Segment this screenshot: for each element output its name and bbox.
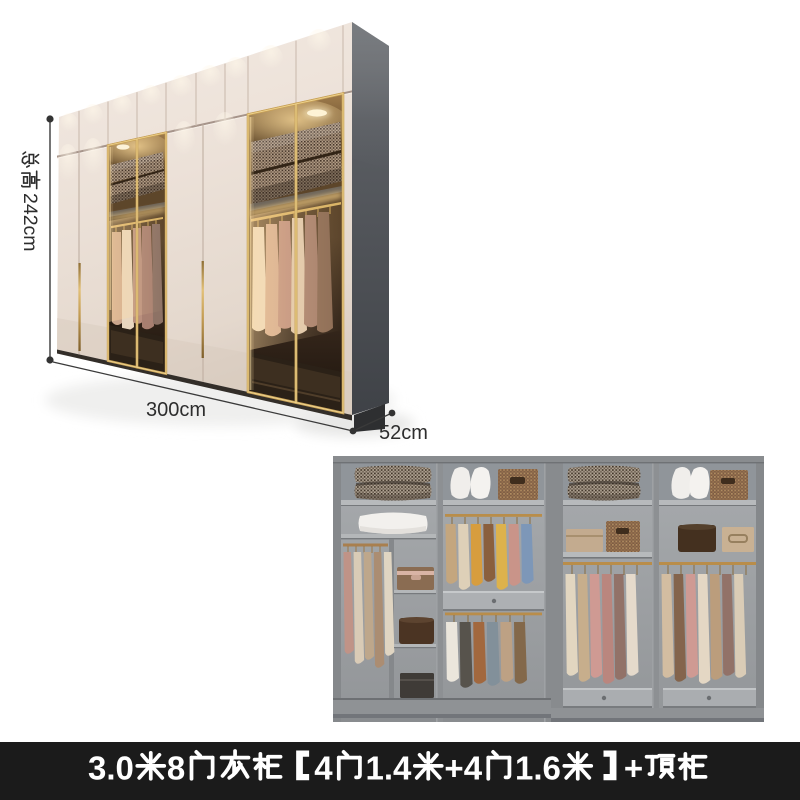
svg-text:1.4: 1.4 bbox=[366, 750, 413, 787]
svg-text:4: 4 bbox=[314, 750, 333, 787]
svg-text:3.0: 3.0 bbox=[88, 750, 134, 787]
svg-text:+: + bbox=[444, 750, 463, 787]
svg-text:1.6: 1.6 bbox=[515, 750, 561, 787]
svg-text:4: 4 bbox=[464, 750, 483, 787]
svg-text:8: 8 bbox=[167, 750, 185, 787]
svg-text:+: + bbox=[624, 750, 643, 787]
svg-text:52cm: 52cm bbox=[379, 422, 428, 444]
svg-text:242cm: 242cm bbox=[19, 193, 41, 252]
svg-text:300cm: 300cm bbox=[146, 399, 206, 421]
